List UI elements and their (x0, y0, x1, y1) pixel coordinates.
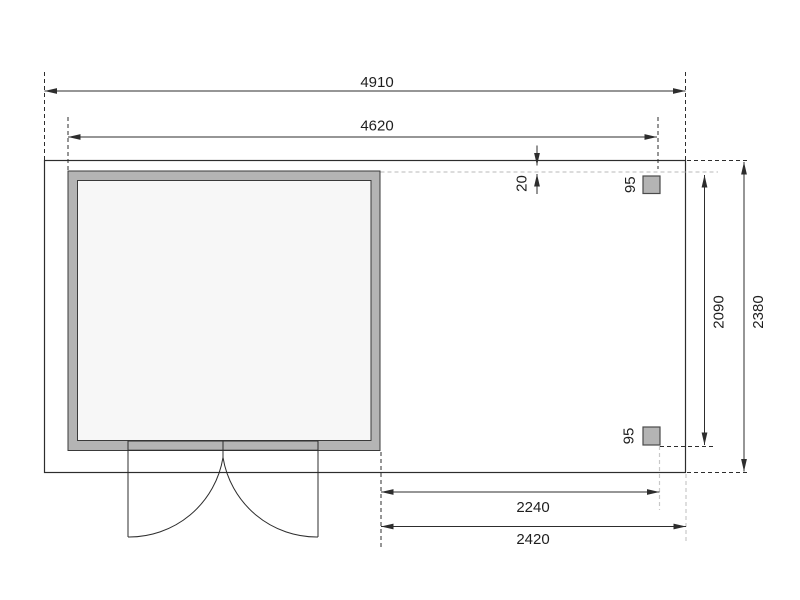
floor-plan-canvas: 4910 4620 20 95 95 2090 2380 2240 2420 (0, 0, 800, 600)
dim-label-shed-width: 4620 (360, 118, 393, 135)
dim-label-annex-post-span: 2240 (516, 499, 549, 516)
dim-label-roof-gap: 20 (514, 175, 531, 192)
dim-label-overall-depth: 2380 (750, 295, 767, 328)
door-swing-arc-left (128, 458, 223, 538)
annex-post-top (643, 176, 660, 194)
floor-plan-drawing: 4910 4620 20 95 95 2090 2380 2240 2420 (0, 0, 800, 600)
dim-label-overall-width: 4910 (360, 74, 393, 91)
dim-label-annex-depth: 2090 (711, 295, 728, 328)
dim-label-annex-width: 2420 (516, 531, 549, 548)
dim-label-post-top: 95 (622, 176, 639, 193)
dim-label-post-bottom: 95 (621, 428, 638, 445)
door-swing-arc-right (223, 458, 318, 538)
annex-post-bottom (643, 427, 660, 445)
shed-interior (78, 181, 372, 441)
